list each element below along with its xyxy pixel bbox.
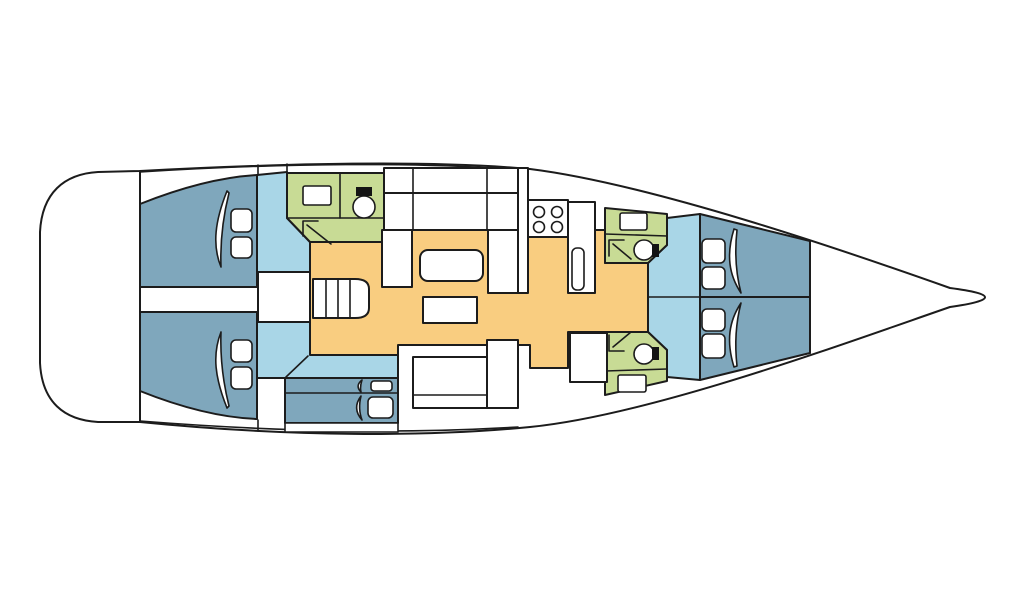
pillow-icon [702, 267, 725, 289]
pillow-icon [702, 334, 725, 358]
nav-seat-left [413, 357, 487, 408]
settee-back-shelf [384, 168, 518, 193]
pillow-icon [368, 397, 393, 418]
nav-seat-right [570, 333, 607, 382]
bunk-shelf [285, 423, 398, 432]
galley-counter-mid [518, 168, 528, 293]
toilet-tank [652, 244, 659, 257]
nav-desk [487, 340, 518, 408]
salon-low-table [423, 297, 477, 323]
pillow-icon [231, 367, 252, 389]
toilet-icon [634, 344, 654, 364]
toilet-tank [356, 187, 372, 196]
stove-top [528, 200, 568, 237]
pillow-icon [702, 239, 725, 263]
sink-icon [618, 375, 646, 392]
toilet-icon [353, 196, 375, 218]
floor-plan-canvas [0, 0, 1024, 600]
pillow-icon [371, 381, 392, 391]
toilet-icon [634, 240, 654, 260]
table-icon [420, 250, 483, 281]
pillow-icon [231, 340, 252, 362]
companionway-landing [258, 272, 310, 322]
galley-sink [572, 248, 584, 290]
settee-left-seat [382, 230, 412, 287]
yacht-floor-plan [0, 0, 1024, 600]
settee-top [384, 193, 518, 230]
settee-right-arm [488, 230, 518, 293]
pillow-icon [231, 237, 252, 258]
stairs-icon [313, 279, 369, 318]
sink-icon [620, 213, 647, 230]
sink-icon [303, 186, 331, 205]
pillow-icon [231, 209, 252, 232]
toilet-tank [652, 347, 659, 360]
pillow-icon [702, 309, 725, 331]
